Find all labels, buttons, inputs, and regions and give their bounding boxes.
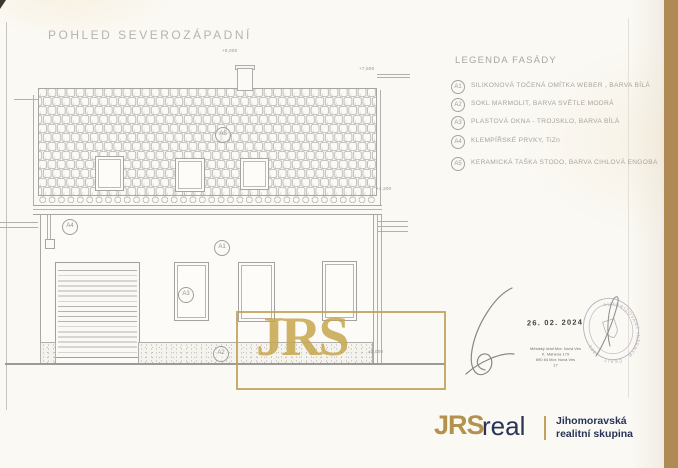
dim-line xyxy=(14,99,38,100)
dim-line xyxy=(0,227,38,228)
brand-real: real xyxy=(482,411,525,442)
corner-speck xyxy=(0,0,6,9)
gutter-band xyxy=(33,205,382,215)
wood-table-edge xyxy=(664,0,678,468)
legend-label: KLEMPÍŘSKÉ PRVKY, TiZn xyxy=(471,136,560,144)
roof-eave-tiles xyxy=(38,196,377,205)
facade-marker-a4: A4 xyxy=(62,219,78,235)
roof-window xyxy=(95,156,124,191)
jrs-watermark-text: JRS xyxy=(256,305,347,369)
frame-line-left xyxy=(6,22,7,410)
legend-label: SILIKONOVÁ TOČENÁ OMÍTKA WEBER , BARVA B… xyxy=(471,81,650,89)
downspout-left xyxy=(50,215,51,239)
facade-marker-a5: A5 xyxy=(215,127,231,143)
dim-line xyxy=(377,226,408,227)
roof-edge-left xyxy=(33,95,34,205)
legend-code: A4 xyxy=(451,135,465,149)
footer-logo: JRS real Jihomoravská realitní skupina xyxy=(430,410,660,450)
elevation-mark-ridge: +7,500 xyxy=(359,66,374,71)
drawing-title: POHLED SEVEROZÁPADNÍ xyxy=(48,28,252,42)
tagline-line2: realitní skupina xyxy=(556,428,633,441)
legend-label: SOKL MARMOLIT, BARVA SVĚTLE MODRÁ xyxy=(471,99,614,107)
dim-line xyxy=(0,222,38,223)
dim-line xyxy=(377,77,410,78)
garage-door xyxy=(55,262,140,358)
roof-window xyxy=(175,158,205,192)
brand-divider xyxy=(544,416,546,440)
dim-line xyxy=(377,221,408,222)
legend-label: PLASTOVÁ OKNA - TROJSKLO, BARVA BÍLÁ xyxy=(471,117,620,125)
brand-tagline: Jihomoravská realitní skupina xyxy=(556,415,633,440)
round-official-seal: AUTORIZOVANÝ INŽENÝR · ČKAIT · 1300 · xyxy=(580,294,644,368)
legend-code: A3 xyxy=(451,116,465,130)
tagline-line1: Jihomoravská xyxy=(556,415,633,428)
plinth-left xyxy=(40,342,56,365)
facade-marker-a3: A3 xyxy=(178,287,194,303)
roof-tile-area xyxy=(38,88,377,196)
downspout-left xyxy=(47,215,48,239)
legend-label: KERAMICKÁ TAŠKA STODO, BARVA CIHLOVÁ ENG… xyxy=(471,158,658,166)
roof-window xyxy=(240,158,269,190)
legend-title: LEGENDA FASÁDY xyxy=(455,55,557,66)
facade-marker-a1: A1 xyxy=(214,240,230,256)
elevation-mark-eaves: +4,200 xyxy=(376,186,391,191)
seal-shield-icon xyxy=(603,319,620,340)
dim-line xyxy=(377,74,410,75)
downspout-box xyxy=(45,239,55,249)
jrs-watermark-box: JRS xyxy=(236,311,446,390)
approval-date-stamp: 26. 02. 2024 xyxy=(527,318,583,328)
dim-line xyxy=(377,231,408,232)
chimney xyxy=(237,68,253,91)
elevation-leader xyxy=(380,193,381,205)
elevation-mark-chimney: +8,000 xyxy=(222,48,237,53)
facade-marker-a2: A2 xyxy=(213,346,229,362)
legend-code: A2 xyxy=(451,98,465,112)
scanned-elevation-drawing: POHLED SEVEROZÁPADNÍ +8,000 xyxy=(0,0,678,468)
legend-code: A1 xyxy=(451,80,465,94)
brand-jrs: JRS xyxy=(434,410,484,441)
legend-code: A5 xyxy=(451,157,465,171)
